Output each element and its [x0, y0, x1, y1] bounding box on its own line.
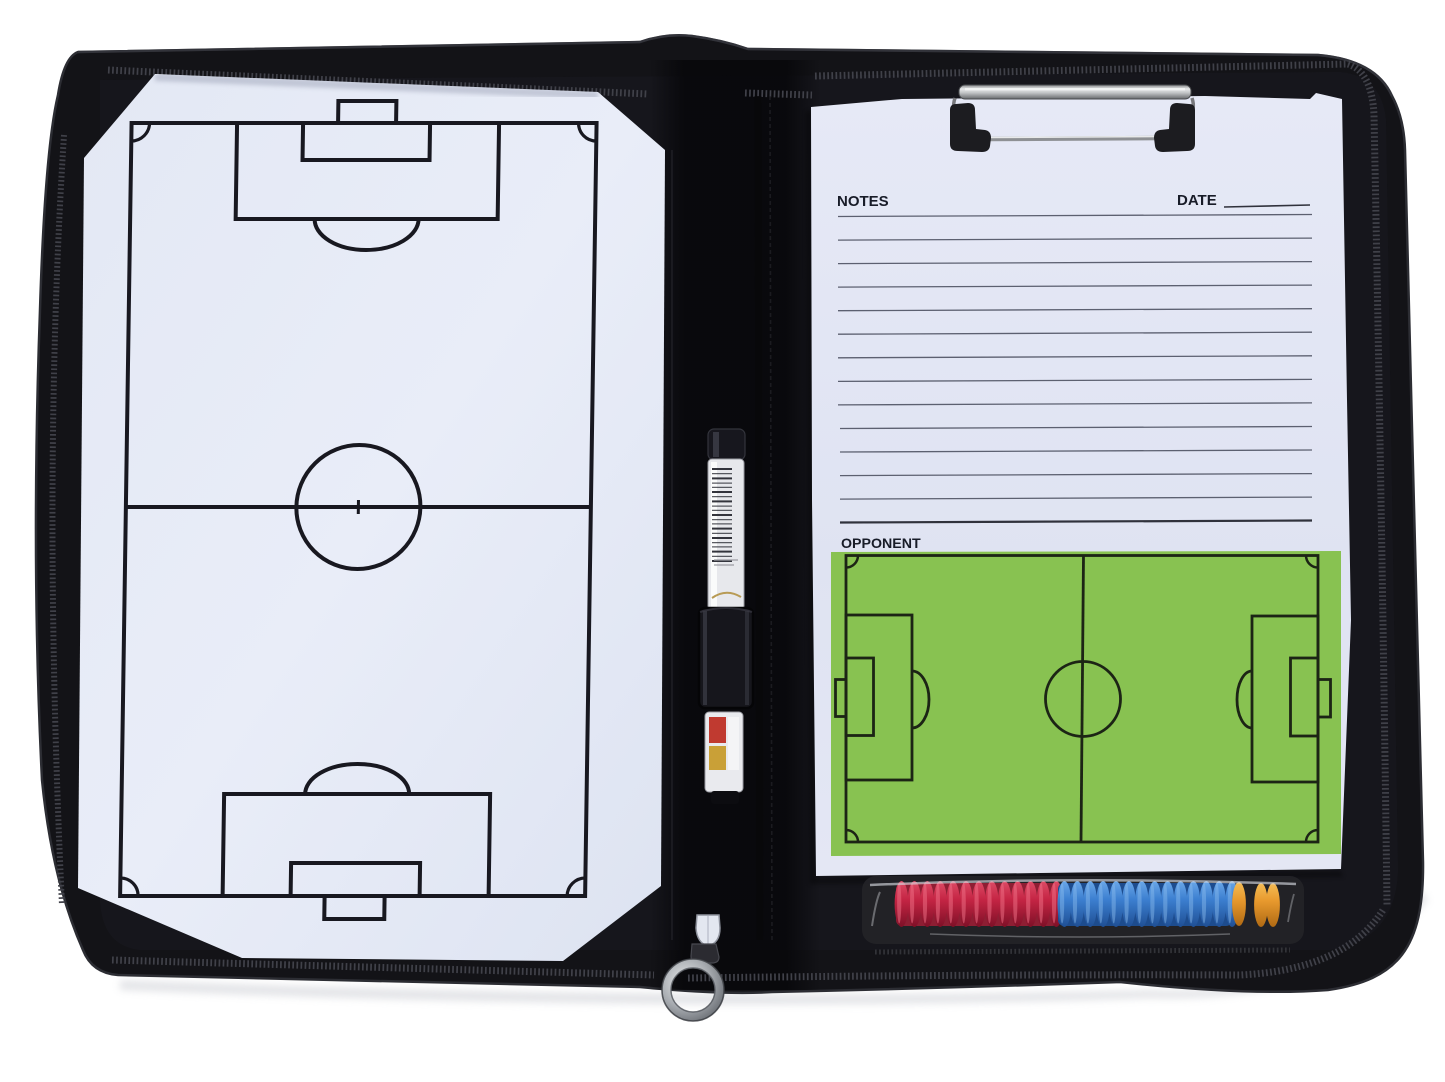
svg-text:OPPONENT: OPPONENT	[841, 536, 921, 552]
svg-text:NOTES: NOTES	[837, 193, 889, 210]
svg-text:DATE: DATE	[1177, 192, 1217, 209]
